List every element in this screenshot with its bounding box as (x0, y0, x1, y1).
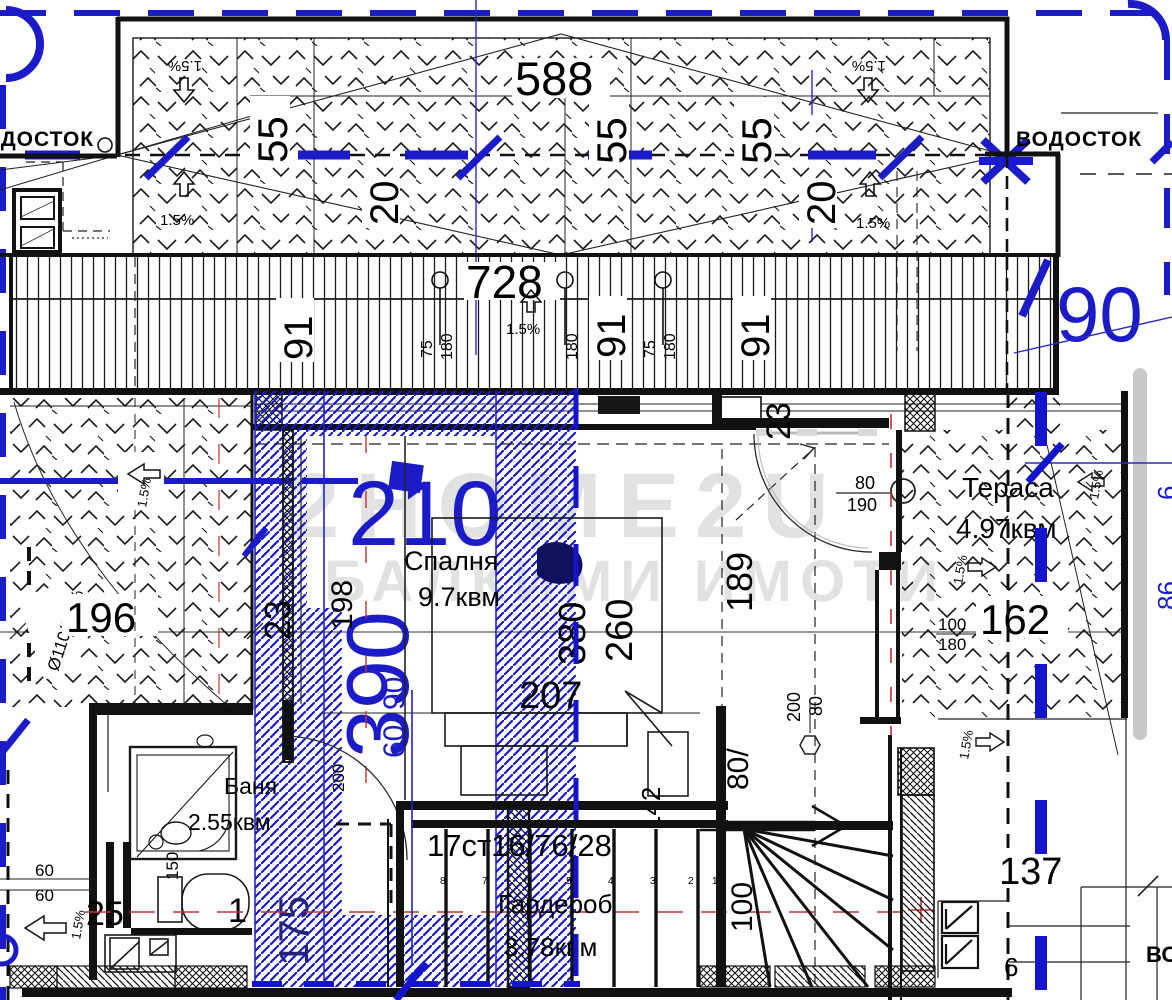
svg-text:91: 91 (734, 314, 778, 359)
svg-text:180: 180 (938, 635, 966, 654)
svg-text:60: 60 (35, 886, 54, 905)
svg-text:2: 2 (688, 876, 694, 887)
svg-text:91: 91 (277, 316, 321, 361)
svg-text:55: 55 (733, 117, 780, 164)
svg-text:150: 150 (163, 852, 182, 880)
svg-text:ВО: ВО (1146, 942, 1172, 967)
svg-text:1.5%: 1.5% (160, 212, 194, 229)
svg-text:189: 189 (719, 552, 760, 612)
svg-text:90: 90 (1056, 270, 1143, 358)
svg-text:86: 86 (1152, 581, 1172, 610)
svg-text:260: 260 (599, 599, 641, 662)
svg-text:ВОДОСТОК: ВОДОСТОК (0, 128, 94, 151)
svg-text:ВОДОСТОК: ВОДОСТОК (1016, 128, 1142, 151)
svg-text:91: 91 (590, 314, 634, 359)
svg-text:1: 1 (228, 892, 247, 930)
svg-text:9.7квм: 9.7квм (418, 582, 500, 612)
svg-text:207: 207 (519, 675, 582, 717)
svg-text:75: 75 (642, 340, 659, 358)
svg-text:90: 90 (378, 677, 411, 710)
svg-text:7: 7 (482, 876, 488, 887)
svg-text:8: 8 (440, 876, 446, 887)
svg-text:180: 180 (564, 333, 581, 360)
svg-text:80: 80 (806, 696, 826, 716)
svg-text:23: 23 (257, 600, 298, 640)
svg-text:Гардероб: Гардероб (498, 889, 612, 919)
svg-text:137: 137 (999, 851, 1062, 893)
svg-text:1.5%: 1.5% (168, 57, 202, 74)
svg-text:1.5%: 1.5% (506, 321, 540, 338)
svg-text:23: 23 (760, 402, 798, 440)
svg-text:3: 3 (650, 876, 656, 887)
svg-text:55: 55 (249, 116, 296, 163)
svg-text:180: 180 (439, 333, 456, 360)
svg-text:196: 196 (66, 594, 136, 641)
svg-text:6: 6 (524, 876, 530, 887)
svg-text:20: 20 (363, 181, 407, 226)
svg-text:60: 60 (378, 725, 411, 758)
svg-text:60: 60 (35, 861, 54, 880)
svg-text:100: 100 (938, 615, 966, 634)
svg-text:1.5%: 1.5% (852, 57, 886, 74)
svg-text:200: 200 (784, 692, 804, 722)
svg-text:3.78квм: 3.78квм (504, 932, 597, 962)
svg-text:80/: 80/ (722, 748, 755, 790)
svg-text:4: 4 (608, 876, 614, 887)
svg-text:Спалня: Спалня (404, 546, 498, 576)
svg-text:728: 728 (466, 256, 543, 308)
svg-text:25: 25 (86, 895, 124, 933)
svg-text:5: 5 (566, 876, 572, 887)
svg-text:75: 75 (419, 340, 436, 358)
svg-text:162: 162 (980, 596, 1050, 643)
svg-text:20: 20 (800, 181, 844, 226)
svg-text:80: 80 (855, 473, 875, 493)
svg-text:6: 6 (1152, 486, 1172, 500)
svg-text:380: 380 (552, 602, 594, 665)
svg-text:180: 180 (662, 333, 679, 360)
svg-text:198: 198 (326, 580, 359, 630)
svg-text:55: 55 (588, 117, 635, 164)
svg-text:175: 175 (270, 896, 317, 966)
svg-text:200: 200 (329, 764, 348, 792)
svg-text:6: 6 (1004, 952, 1018, 982)
svg-text:100: 100 (726, 882, 759, 932)
svg-text:1.5%: 1.5% (856, 215, 890, 232)
svg-text:17ст16/76/28: 17ст16/76/28 (427, 828, 612, 863)
svg-text:588: 588 (515, 52, 593, 105)
svg-text:1: 1 (712, 876, 718, 887)
svg-text:190: 190 (847, 495, 877, 515)
svg-text:Баня: Баня (224, 773, 277, 799)
